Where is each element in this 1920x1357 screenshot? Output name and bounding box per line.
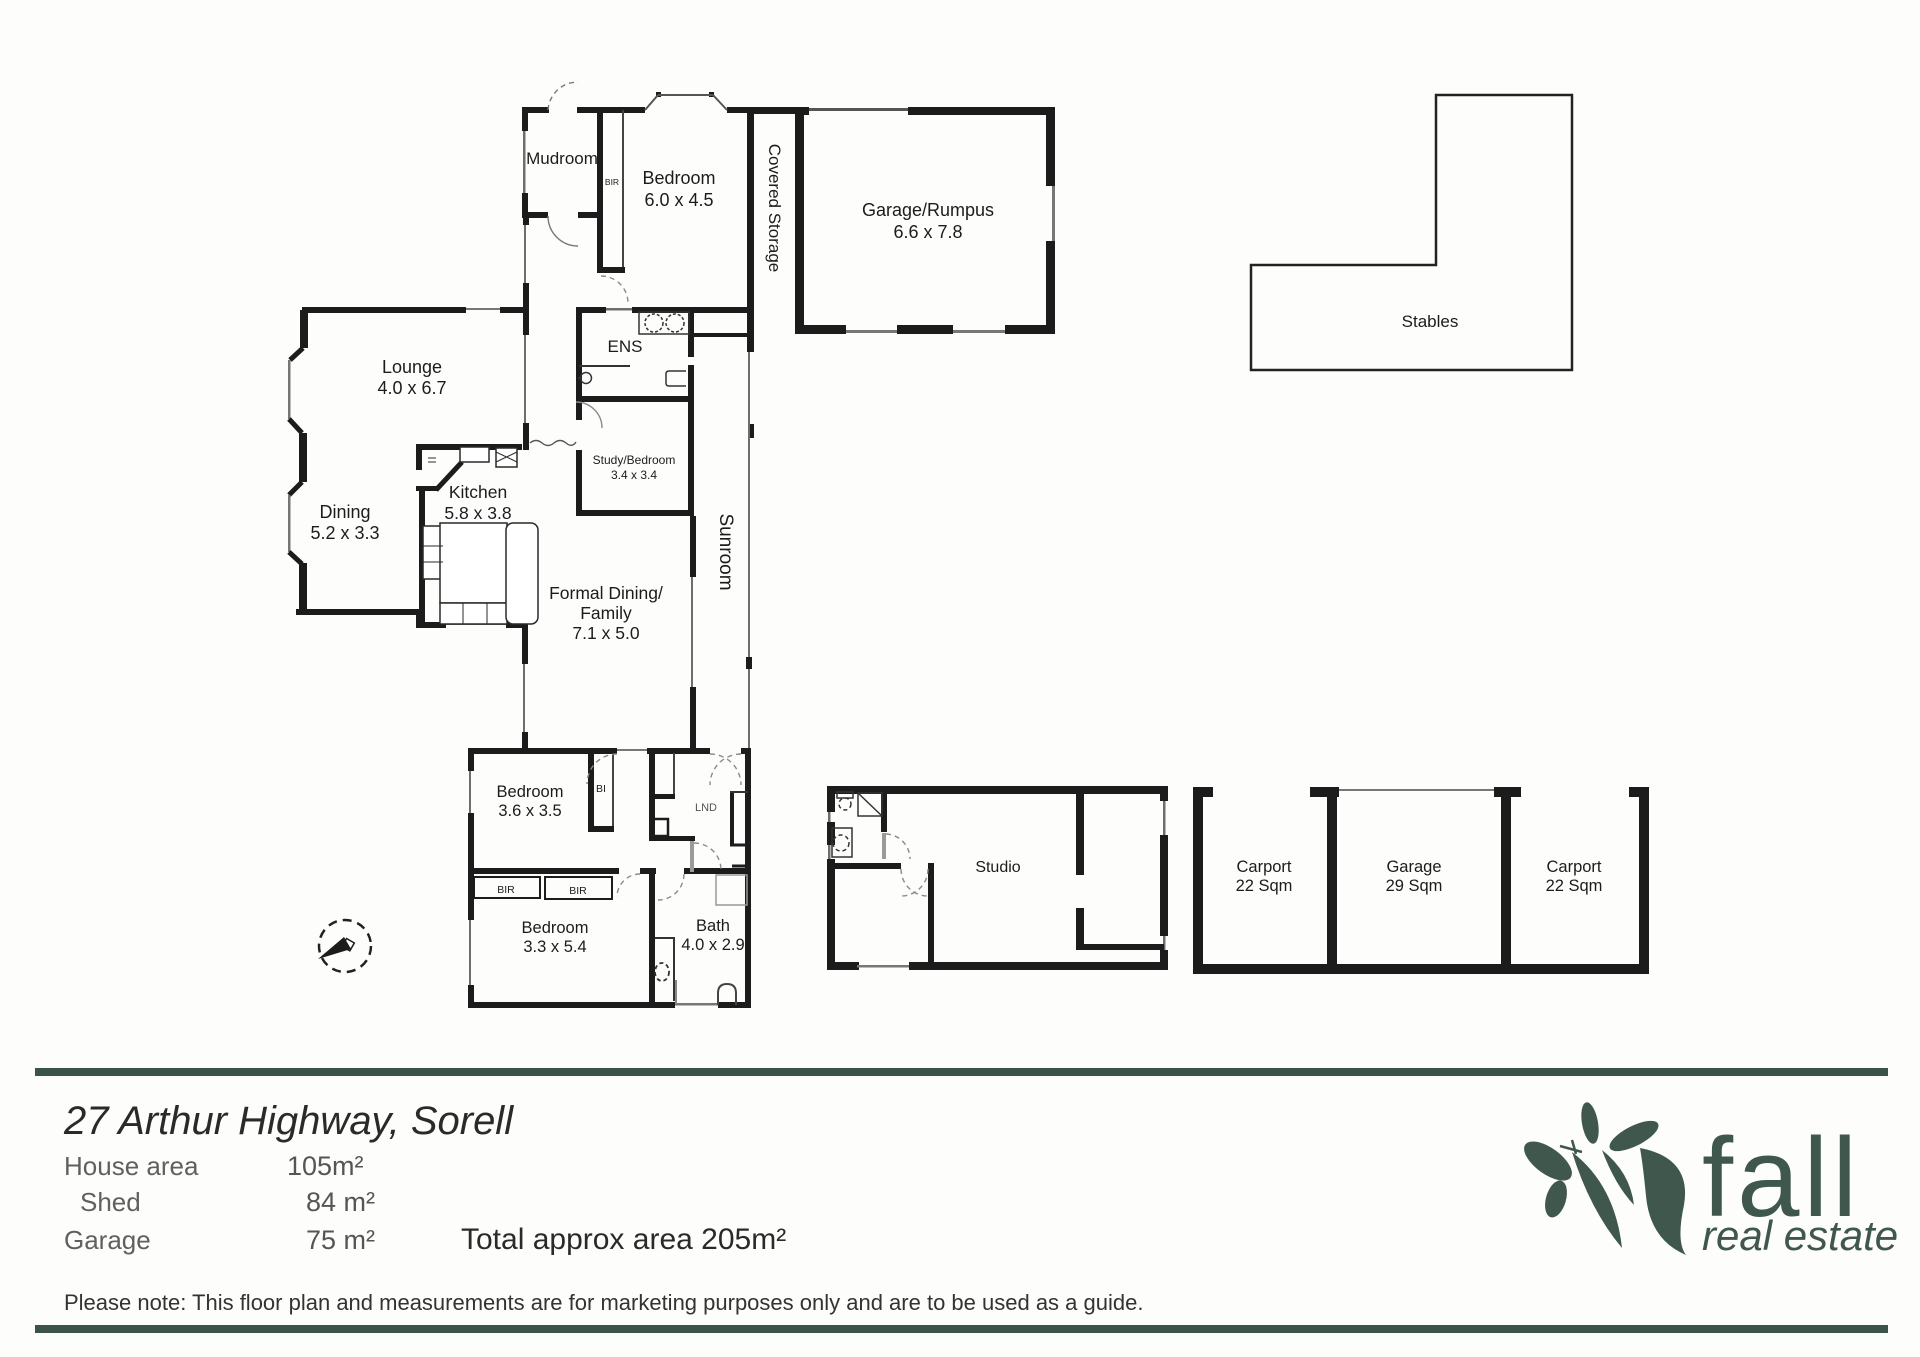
svg-text:Garage: Garage [64, 1225, 151, 1255]
svg-text:4.0 x 6.7: 4.0 x 6.7 [377, 378, 446, 398]
svg-text:6.6 x 7.8: 6.6 x 7.8 [893, 222, 962, 242]
svg-text:5.8 x 3.8: 5.8 x 3.8 [444, 503, 511, 523]
svg-text:Mudroom: Mudroom [526, 149, 598, 168]
svg-text:Shed: Shed [80, 1187, 141, 1217]
svg-text:Carport: Carport [1236, 858, 1291, 876]
svg-text:Study/Bedroom: Study/Bedroom [593, 453, 676, 467]
svg-text:Dining: Dining [319, 502, 370, 522]
svg-text:4.0 x 2.9: 4.0 x 2.9 [681, 936, 744, 954]
svg-text:3.4 x 3.4: 3.4 x 3.4 [611, 468, 657, 482]
svg-text:27 Arthur Highway, Sorell: 27 Arthur Highway, Sorell [63, 1099, 514, 1143]
svg-text:Sunroom: Sunroom [715, 513, 736, 590]
svg-text:Covered Storage: Covered Storage [765, 144, 784, 273]
svg-text:Bedroom: Bedroom [642, 168, 715, 188]
svg-text:Family: Family [580, 603, 632, 623]
svg-text:LND: LND [695, 802, 717, 814]
svg-text:Bedroom: Bedroom [497, 783, 564, 801]
svg-text:Total approx area 205m²: Total approx area 205m² [461, 1223, 786, 1256]
svg-text:29 Sqm: 29 Sqm [1386, 877, 1443, 895]
svg-text:84 m²: 84 m² [306, 1187, 375, 1217]
svg-text:Please note: This floor plan a: Please note: This floor plan and measure… [64, 1290, 1143, 1315]
svg-text:Bedroom: Bedroom [522, 919, 589, 937]
svg-text:Bath: Bath [696, 917, 730, 935]
svg-text:3.6 x 3.5: 3.6 x 3.5 [498, 802, 561, 820]
svg-text:Lounge: Lounge [382, 357, 442, 377]
svg-text:7.1 x 5.0: 7.1 x 5.0 [572, 623, 639, 643]
svg-text:House area: House area [64, 1151, 199, 1181]
svg-text:ENS: ENS [608, 337, 643, 356]
svg-text:6.0 x 4.5: 6.0 x 4.5 [644, 190, 713, 210]
svg-text:Stables: Stables [1402, 312, 1459, 331]
svg-text:BIR: BIR [569, 885, 587, 897]
svg-text:Garage: Garage [1386, 858, 1441, 876]
svg-text:105m²: 105m² [287, 1151, 364, 1181]
svg-text:75 m²: 75 m² [306, 1225, 375, 1255]
svg-text:Kitchen: Kitchen [449, 482, 507, 502]
svg-text:Studio: Studio [975, 859, 1020, 876]
svg-text:3.3 x 5.4: 3.3 x 5.4 [523, 938, 586, 956]
svg-text:BI: BI [596, 783, 606, 795]
svg-text:Garage/Rumpus: Garage/Rumpus [862, 200, 994, 220]
svg-text:BIR: BIR [497, 884, 515, 896]
svg-text:BIR: BIR [605, 177, 619, 187]
svg-text:22 Sqm: 22 Sqm [1236, 877, 1293, 895]
svg-text:Carport: Carport [1546, 858, 1601, 876]
svg-text:real estate: real estate [1702, 1212, 1898, 1259]
svg-text:5.2 x 3.3: 5.2 x 3.3 [310, 523, 379, 543]
svg-text:22 Sqm: 22 Sqm [1546, 877, 1603, 895]
svg-text:Formal Dining/: Formal Dining/ [549, 583, 663, 603]
